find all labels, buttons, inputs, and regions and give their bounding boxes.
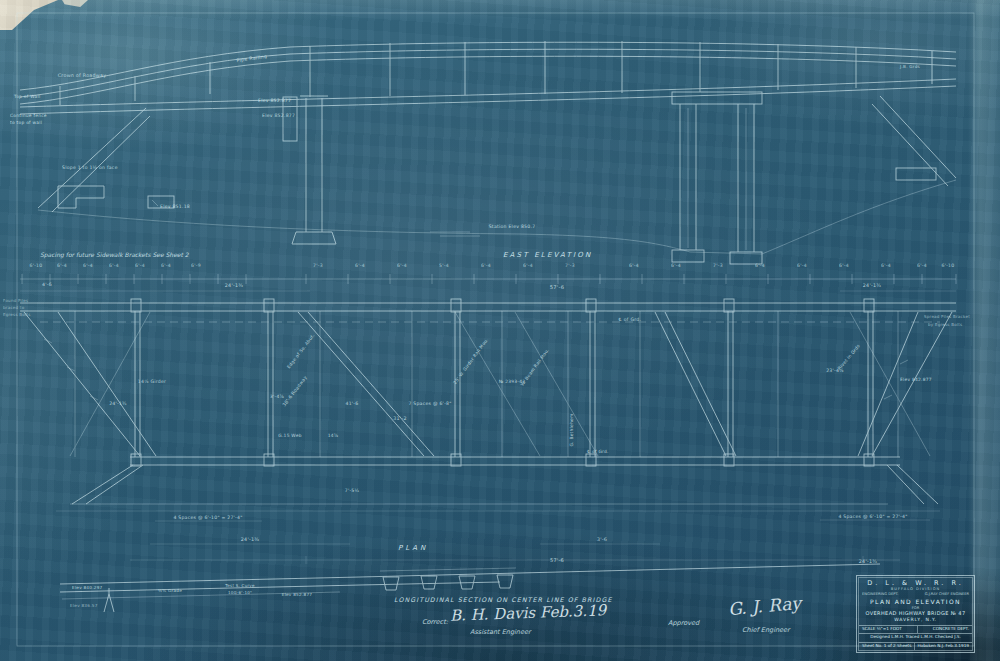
drawing-label: Elev 851.18 xyxy=(160,204,190,209)
east-elevation-linework xyxy=(20,41,956,264)
title-block-scale: SCALE ¼"=1 FOOT xyxy=(862,627,902,632)
drawing-label: 6'-4 xyxy=(881,263,891,268)
drawing-label: G.15 Web xyxy=(278,433,301,438)
drawing-label: 4 Spaces @ 6'-10" = 27'-4" xyxy=(173,515,242,520)
title-block-title2: OVERHEAD HIGHWAY BRIDGE № 47 xyxy=(859,611,972,617)
drawing-label: 24'-1¾ xyxy=(109,401,127,406)
drawing-labels: Crown of RoadwayPipe RailingJ.B. GrdsTop… xyxy=(3,54,970,608)
drawing-label: Continue fence xyxy=(10,113,47,118)
drawing-label: Elev 842.877 xyxy=(900,377,932,382)
drawing-label: 24'-1¾ xyxy=(225,283,243,288)
drawing-label: 24'-1¾ xyxy=(859,559,877,564)
drawing-label: 4'-6 xyxy=(42,282,52,287)
drawing-label: Elev 852.877 xyxy=(258,98,291,103)
drawing-label: Slope 1 to 1½ on face xyxy=(62,165,118,170)
title-block-title1: PLAN AND ELEVATION xyxy=(859,599,972,606)
drawing-label: Top of Wall xyxy=(13,94,40,99)
drawing-label: 31'-2 xyxy=(393,416,406,421)
drawing-label: 14⅞ xyxy=(328,433,339,438)
drawing-label: 6'-4 xyxy=(355,263,365,268)
drawing-label: 6'-9 xyxy=(191,263,201,268)
plan-heading: PLAN xyxy=(398,544,428,552)
drawing-label: 6'-4 xyxy=(523,263,533,268)
drawing-label: 57'-6 xyxy=(550,284,564,290)
drawing-label: 6'-4 xyxy=(83,263,93,268)
approved-title: Chief Engineer xyxy=(742,626,790,634)
correct-title: Assistant Engineer xyxy=(470,628,531,636)
drawing-label: Crown of Roadway xyxy=(58,73,107,78)
drawing-label: 3'-6 xyxy=(597,537,607,542)
drawing-label: 6'-4 xyxy=(917,263,927,268)
drawing-label: 7'-3 xyxy=(565,263,575,268)
drawing-label: braced to xyxy=(3,305,25,310)
drawing-label: 6'-10 xyxy=(942,263,955,268)
drawing-label: 6'-4 xyxy=(57,263,67,268)
drawing-label: J.B. Grds xyxy=(899,64,920,69)
drawing-label: Station Elev 850.7 xyxy=(489,224,536,229)
drawing-label: 7'-3 xyxy=(313,263,323,268)
drawing-label: 3'-4⅞ xyxy=(270,394,284,399)
drawing-label: ℄ of Grd. xyxy=(618,317,641,322)
drawing-label: Edge of So. Abut. xyxy=(286,333,315,370)
drawing-label: G. Bethlehem xyxy=(569,413,574,446)
title-block-railroad: D. L. & W. R. R. xyxy=(859,578,972,587)
blueprint-sheet: Crown of RoadwayPipe RailingJ.B. GrdsTop… xyxy=(0,0,1000,661)
drawing-label: Found Piles xyxy=(3,298,28,303)
drawing-label: Elev 852.877 xyxy=(262,113,295,118)
drawing-label: by Egress Bolts xyxy=(928,322,962,327)
elevation-heading: EAST ELEVATION xyxy=(503,251,592,259)
correct-label: Correct: xyxy=(422,618,448,626)
drawing-label: 6'-4 xyxy=(109,263,119,268)
title-block-designed: Designed L.M.H. Traced L.M.H. Checked J.… xyxy=(870,635,961,640)
drawing-label: Elev 840.297 xyxy=(72,585,103,590)
drawing-label: Rivet in Grds xyxy=(837,343,861,371)
sheet-border xyxy=(17,13,974,646)
drawing-label: 6'-4 xyxy=(755,263,765,268)
title-block-dept: ENGINEERING DEPT. xyxy=(862,592,898,596)
title-block-chief: G.J.RAY CHIEF ENGINEER xyxy=(925,592,969,596)
drawing-label: 41'-6 xyxy=(346,401,359,406)
sidewalk-note: Spacing for future Sidewalk Brackets See… xyxy=(40,251,189,258)
title-block-dept2: CONCRETE DEPT. xyxy=(933,627,969,632)
drawing-label: 5'-4 xyxy=(439,263,449,268)
drawing-label: ℄ of Grd. xyxy=(586,449,608,454)
drawing-label: 7'-5¼ xyxy=(345,488,360,493)
drawing-label: 6'-10 xyxy=(30,263,43,268)
drawing-label: 6'-4 xyxy=(161,263,171,268)
drawing-label: 38'-6 Roadway xyxy=(282,375,308,408)
title-block-place-date: Hoboken N.J. Feb.3.1919 xyxy=(917,644,969,649)
drawing-label: 6'-4 xyxy=(397,263,407,268)
drawing-label: W. Beam Rail Mou. xyxy=(520,347,551,386)
plan-linework xyxy=(20,299,956,564)
approved-label: Approved xyxy=(668,619,699,627)
drawing-label: 24'-1¾ xyxy=(863,283,881,288)
drawing-label: to top of wall xyxy=(10,120,42,125)
drawing-label: Elev 852.877 xyxy=(282,592,313,597)
drawing-label: 6'-4 xyxy=(671,263,681,268)
drawing-label: 6'-4 xyxy=(797,263,807,268)
drawing-label: 7'-3 xyxy=(713,263,723,268)
title-block-location: WAVERLY, N.Y. xyxy=(859,617,972,622)
drawing-label: Egress Bolts xyxy=(3,312,30,317)
drawing-canvas: Crown of RoadwayPipe RailingJ.B. GrdsTop… xyxy=(0,0,1000,661)
drawing-label: 6'-4 xyxy=(629,263,639,268)
dimension-row xyxy=(20,274,956,291)
title-block: D. L. & W. R. R. BUFFALO DIVISION ENGINE… xyxy=(856,575,975,653)
drawing-label: 7 Spaces @ 6'-8" xyxy=(408,401,451,406)
drawing-label: Test S. Curve xyxy=(224,583,255,588)
drawing-label: ½% Grade xyxy=(158,588,182,593)
drawing-label: 6'-4 xyxy=(839,263,849,268)
title-block-sheet-no: Sheet No. 1 of 2 Sheets xyxy=(862,644,911,649)
drawing-label: 14⅞ Girder xyxy=(138,379,167,384)
drawing-label: 6'-4 xyxy=(135,263,145,268)
drawing-label: Spread Piles Bracket xyxy=(924,314,970,319)
drawing-label: 57'-6 xyxy=(550,557,564,563)
drawing-label: 4 Spaces @ 6'-10" = 27'-4" xyxy=(838,514,907,519)
drawing-label: 6'-4 xyxy=(481,263,491,268)
drawing-label: 10G-6'-10" xyxy=(228,590,252,595)
drawing-label: Elev 836.57 xyxy=(70,603,98,608)
drawing-label: Pipe Railing xyxy=(236,54,267,63)
title-block-for: FOR xyxy=(859,606,972,610)
drawing-label: 24'-1¾ xyxy=(241,537,259,542)
